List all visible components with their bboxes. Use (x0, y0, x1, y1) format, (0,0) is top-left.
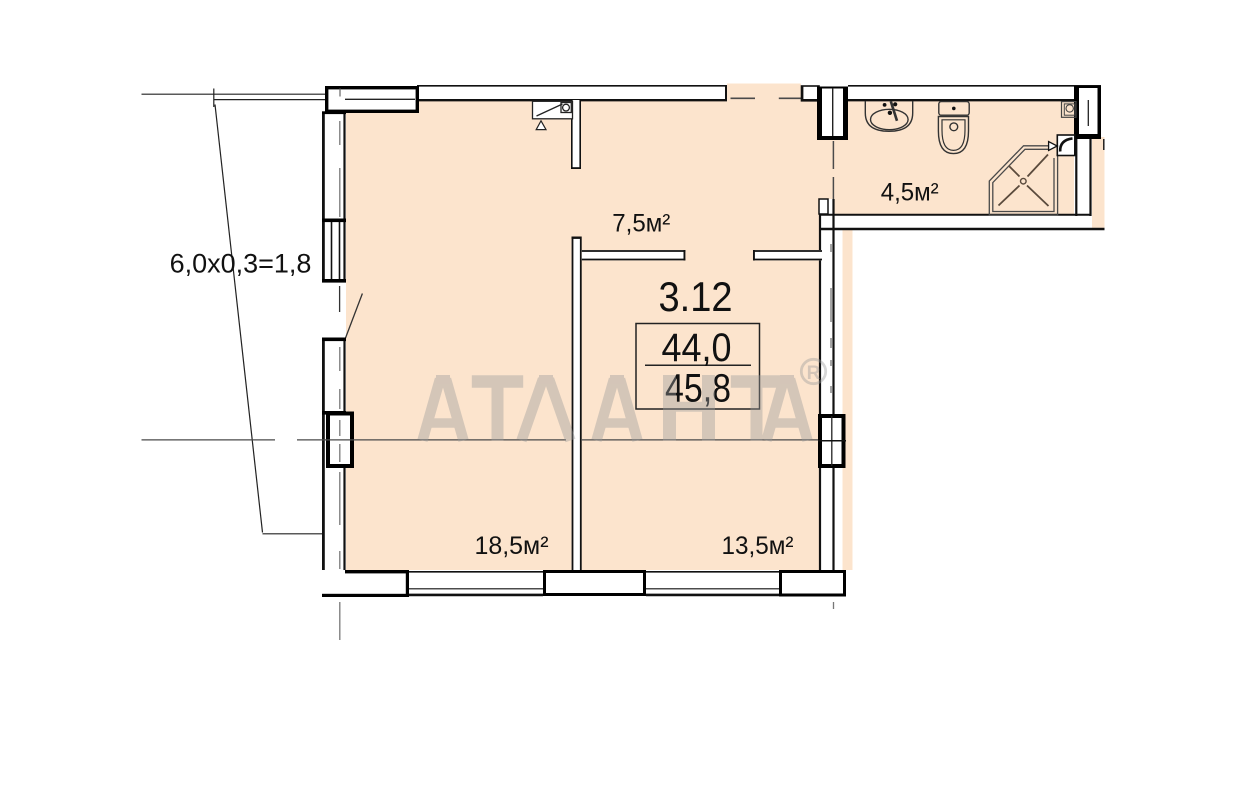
svg-text:R: R (807, 363, 821, 384)
svg-text:3.12: 3.12 (659, 273, 733, 320)
svg-text:4,5м²: 4,5м² (881, 179, 939, 207)
svg-text:18,5м²: 18,5м² (475, 532, 549, 560)
svg-text:7,5м²: 7,5м² (612, 209, 670, 237)
svg-text:6,0х0,3=1,8: 6,0х0,3=1,8 (170, 249, 312, 279)
svg-text:13,5м²: 13,5м² (722, 532, 794, 560)
svg-text:44,0: 44,0 (662, 326, 732, 370)
